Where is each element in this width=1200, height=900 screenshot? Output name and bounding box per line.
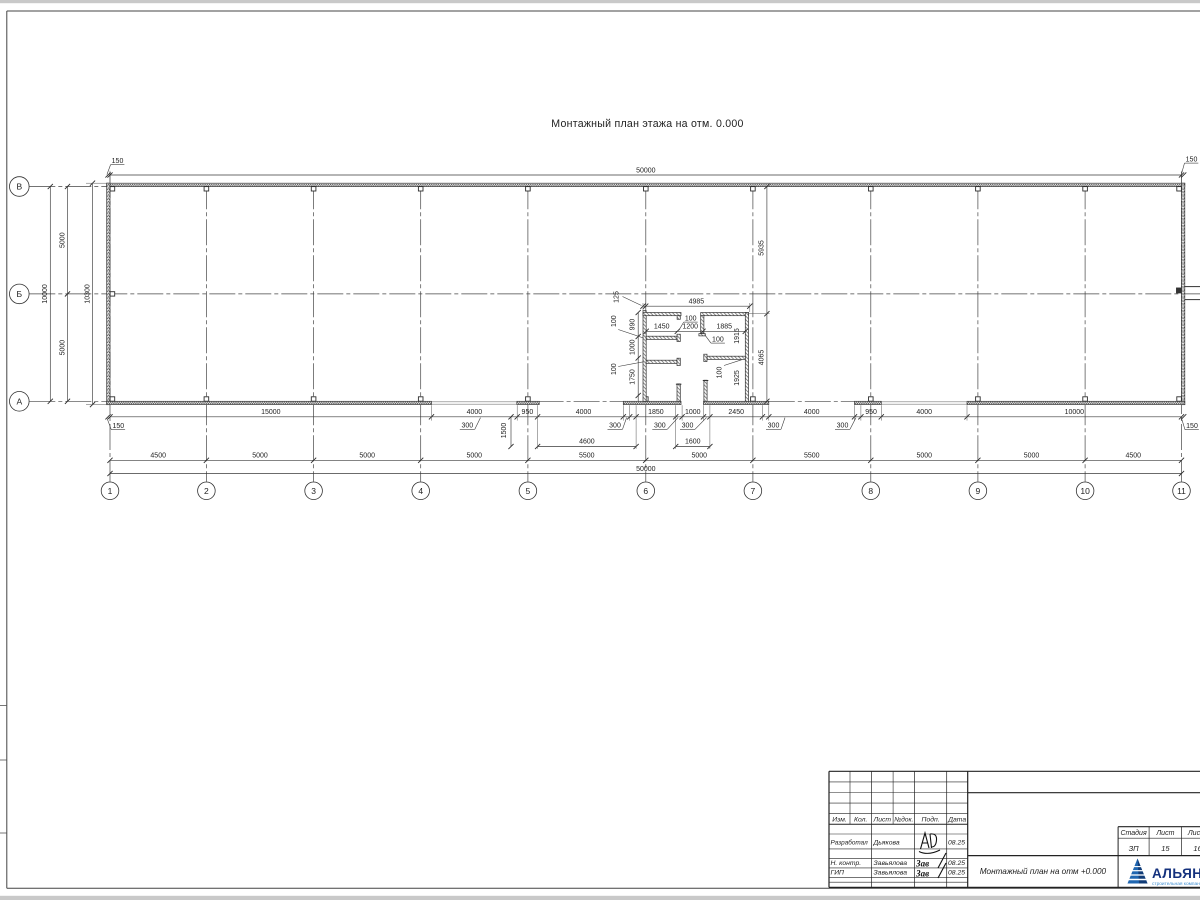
svg-text:10000: 10000 (42, 284, 49, 304)
svg-text:5500: 5500 (804, 453, 820, 460)
svg-text:1000: 1000 (685, 409, 701, 416)
svg-text:5: 5 (526, 486, 531, 496)
svg-text:3: 3 (311, 486, 316, 496)
svg-text:4000: 4000 (576, 409, 592, 416)
svg-text:ЗП: ЗП (1129, 844, 1140, 853)
svg-text:5000: 5000 (252, 453, 268, 460)
svg-text:1450: 1450 (654, 323, 670, 330)
svg-text:1500: 1500 (501, 423, 508, 439)
svg-text:5000: 5000 (59, 340, 66, 356)
svg-text:08.25: 08.25 (948, 840, 965, 847)
svg-text:В: В (16, 182, 22, 192)
svg-text:150: 150 (112, 423, 124, 430)
svg-text:4500: 4500 (1126, 453, 1142, 460)
svg-text:6: 6 (643, 486, 648, 496)
svg-text:1850: 1850 (648, 409, 664, 416)
svg-text:1915: 1915 (734, 328, 741, 344)
svg-text:300: 300 (682, 423, 694, 430)
svg-text:Зав: Зав (915, 869, 929, 879)
svg-text:1600: 1600 (685, 439, 701, 446)
svg-text:16: 16 (1193, 844, 1200, 853)
svg-text:4985: 4985 (689, 299, 705, 306)
svg-text:150: 150 (1186, 156, 1198, 163)
svg-text:Завьялова: Завьялова (874, 869, 908, 876)
svg-text:10: 10 (1080, 486, 1090, 496)
svg-text:1925: 1925 (734, 370, 741, 386)
svg-text:№док.: №док. (894, 816, 913, 824)
svg-text:5000: 5000 (359, 453, 375, 460)
svg-text:08.25: 08.25 (948, 860, 965, 867)
svg-text:Стадия: Стадия (1120, 829, 1146, 837)
svg-text:Монтажный план этажа на отм. 0: Монтажный план этажа на отм. 0.000 (551, 118, 743, 130)
svg-text:150: 150 (1186, 423, 1198, 430)
svg-text:300: 300 (768, 423, 780, 430)
svg-text:10000: 10000 (1065, 409, 1085, 416)
svg-text:8: 8 (868, 486, 873, 496)
svg-text:5935: 5935 (758, 240, 765, 256)
svg-text:50000: 50000 (636, 466, 656, 473)
svg-text:125: 125 (613, 291, 620, 303)
svg-text:4000: 4000 (467, 409, 483, 416)
svg-text:А: А (16, 397, 22, 407)
svg-text:300: 300 (461, 423, 473, 430)
svg-text:50000: 50000 (636, 167, 656, 174)
svg-text:100: 100 (685, 315, 697, 322)
svg-text:Дьякова: Дьякова (873, 840, 900, 847)
svg-text:150: 150 (112, 158, 124, 165)
svg-text:2450: 2450 (728, 409, 744, 416)
svg-text:15: 15 (1161, 844, 1170, 853)
svg-text:4000: 4000 (916, 409, 932, 416)
svg-text:Разработал: Разработал (831, 839, 869, 847)
svg-text:4: 4 (418, 486, 423, 496)
svg-text:4500: 4500 (150, 453, 166, 460)
svg-text:АЛЬЯНС: АЛЬЯНС (1152, 866, 1200, 881)
svg-text:Зав: Зав (915, 859, 929, 869)
svg-text:100: 100 (712, 336, 724, 343)
svg-text:Б: Б (17, 289, 23, 299)
svg-text:Завьялова: Завьялова (874, 860, 908, 867)
svg-text:5000: 5000 (692, 453, 708, 460)
svg-text:15000: 15000 (261, 409, 281, 416)
svg-text:5000: 5000 (917, 453, 933, 460)
svg-text:11: 11 (1177, 486, 1186, 496)
svg-text:Изм.: Изм. (832, 817, 847, 824)
svg-text:1885: 1885 (717, 323, 733, 330)
svg-text:100: 100 (611, 315, 618, 327)
svg-text:1000: 1000 (630, 339, 637, 355)
svg-text:990: 990 (630, 319, 637, 331)
svg-text:950: 950 (865, 409, 877, 416)
svg-text:300: 300 (654, 423, 666, 430)
svg-text:Лист: Лист (1187, 830, 1200, 837)
svg-text:9: 9 (976, 486, 981, 496)
svg-text:Дата: Дата (947, 817, 966, 824)
svg-text:4065: 4065 (758, 350, 765, 366)
svg-text:Подп.: Подп. (922, 816, 940, 824)
svg-text:5500: 5500 (579, 453, 595, 460)
svg-text:4000: 4000 (804, 409, 820, 416)
svg-text:Н. контр.: Н. контр. (831, 860, 862, 867)
svg-text:ГИП: ГИП (831, 869, 845, 876)
svg-text:300: 300 (837, 423, 849, 430)
svg-text:1200: 1200 (683, 323, 699, 330)
svg-text:7: 7 (751, 486, 756, 496)
svg-text:5000: 5000 (59, 232, 66, 248)
svg-text:5000: 5000 (467, 453, 483, 460)
svg-text:1750: 1750 (630, 369, 637, 385)
svg-text:Монтажный план на отм +0.000: Монтажный план на отм +0.000 (980, 867, 1107, 876)
svg-text:Кол.: Кол. (854, 817, 867, 824)
svg-text:100: 100 (717, 367, 724, 379)
svg-text:5000: 5000 (1024, 453, 1040, 460)
svg-text:950: 950 (522, 409, 534, 416)
svg-text:4600: 4600 (579, 439, 595, 446)
svg-text:100: 100 (611, 363, 618, 375)
svg-text:1: 1 (108, 486, 113, 496)
svg-text:Лист: Лист (1155, 830, 1174, 837)
svg-text:Лист: Лист (873, 817, 892, 824)
svg-text:08.25: 08.25 (948, 869, 965, 876)
svg-text:10300: 10300 (84, 284, 91, 304)
svg-text:300: 300 (609, 423, 621, 430)
svg-text:2: 2 (204, 486, 209, 496)
svg-text:строительная компания: строительная компания (1152, 882, 1200, 887)
